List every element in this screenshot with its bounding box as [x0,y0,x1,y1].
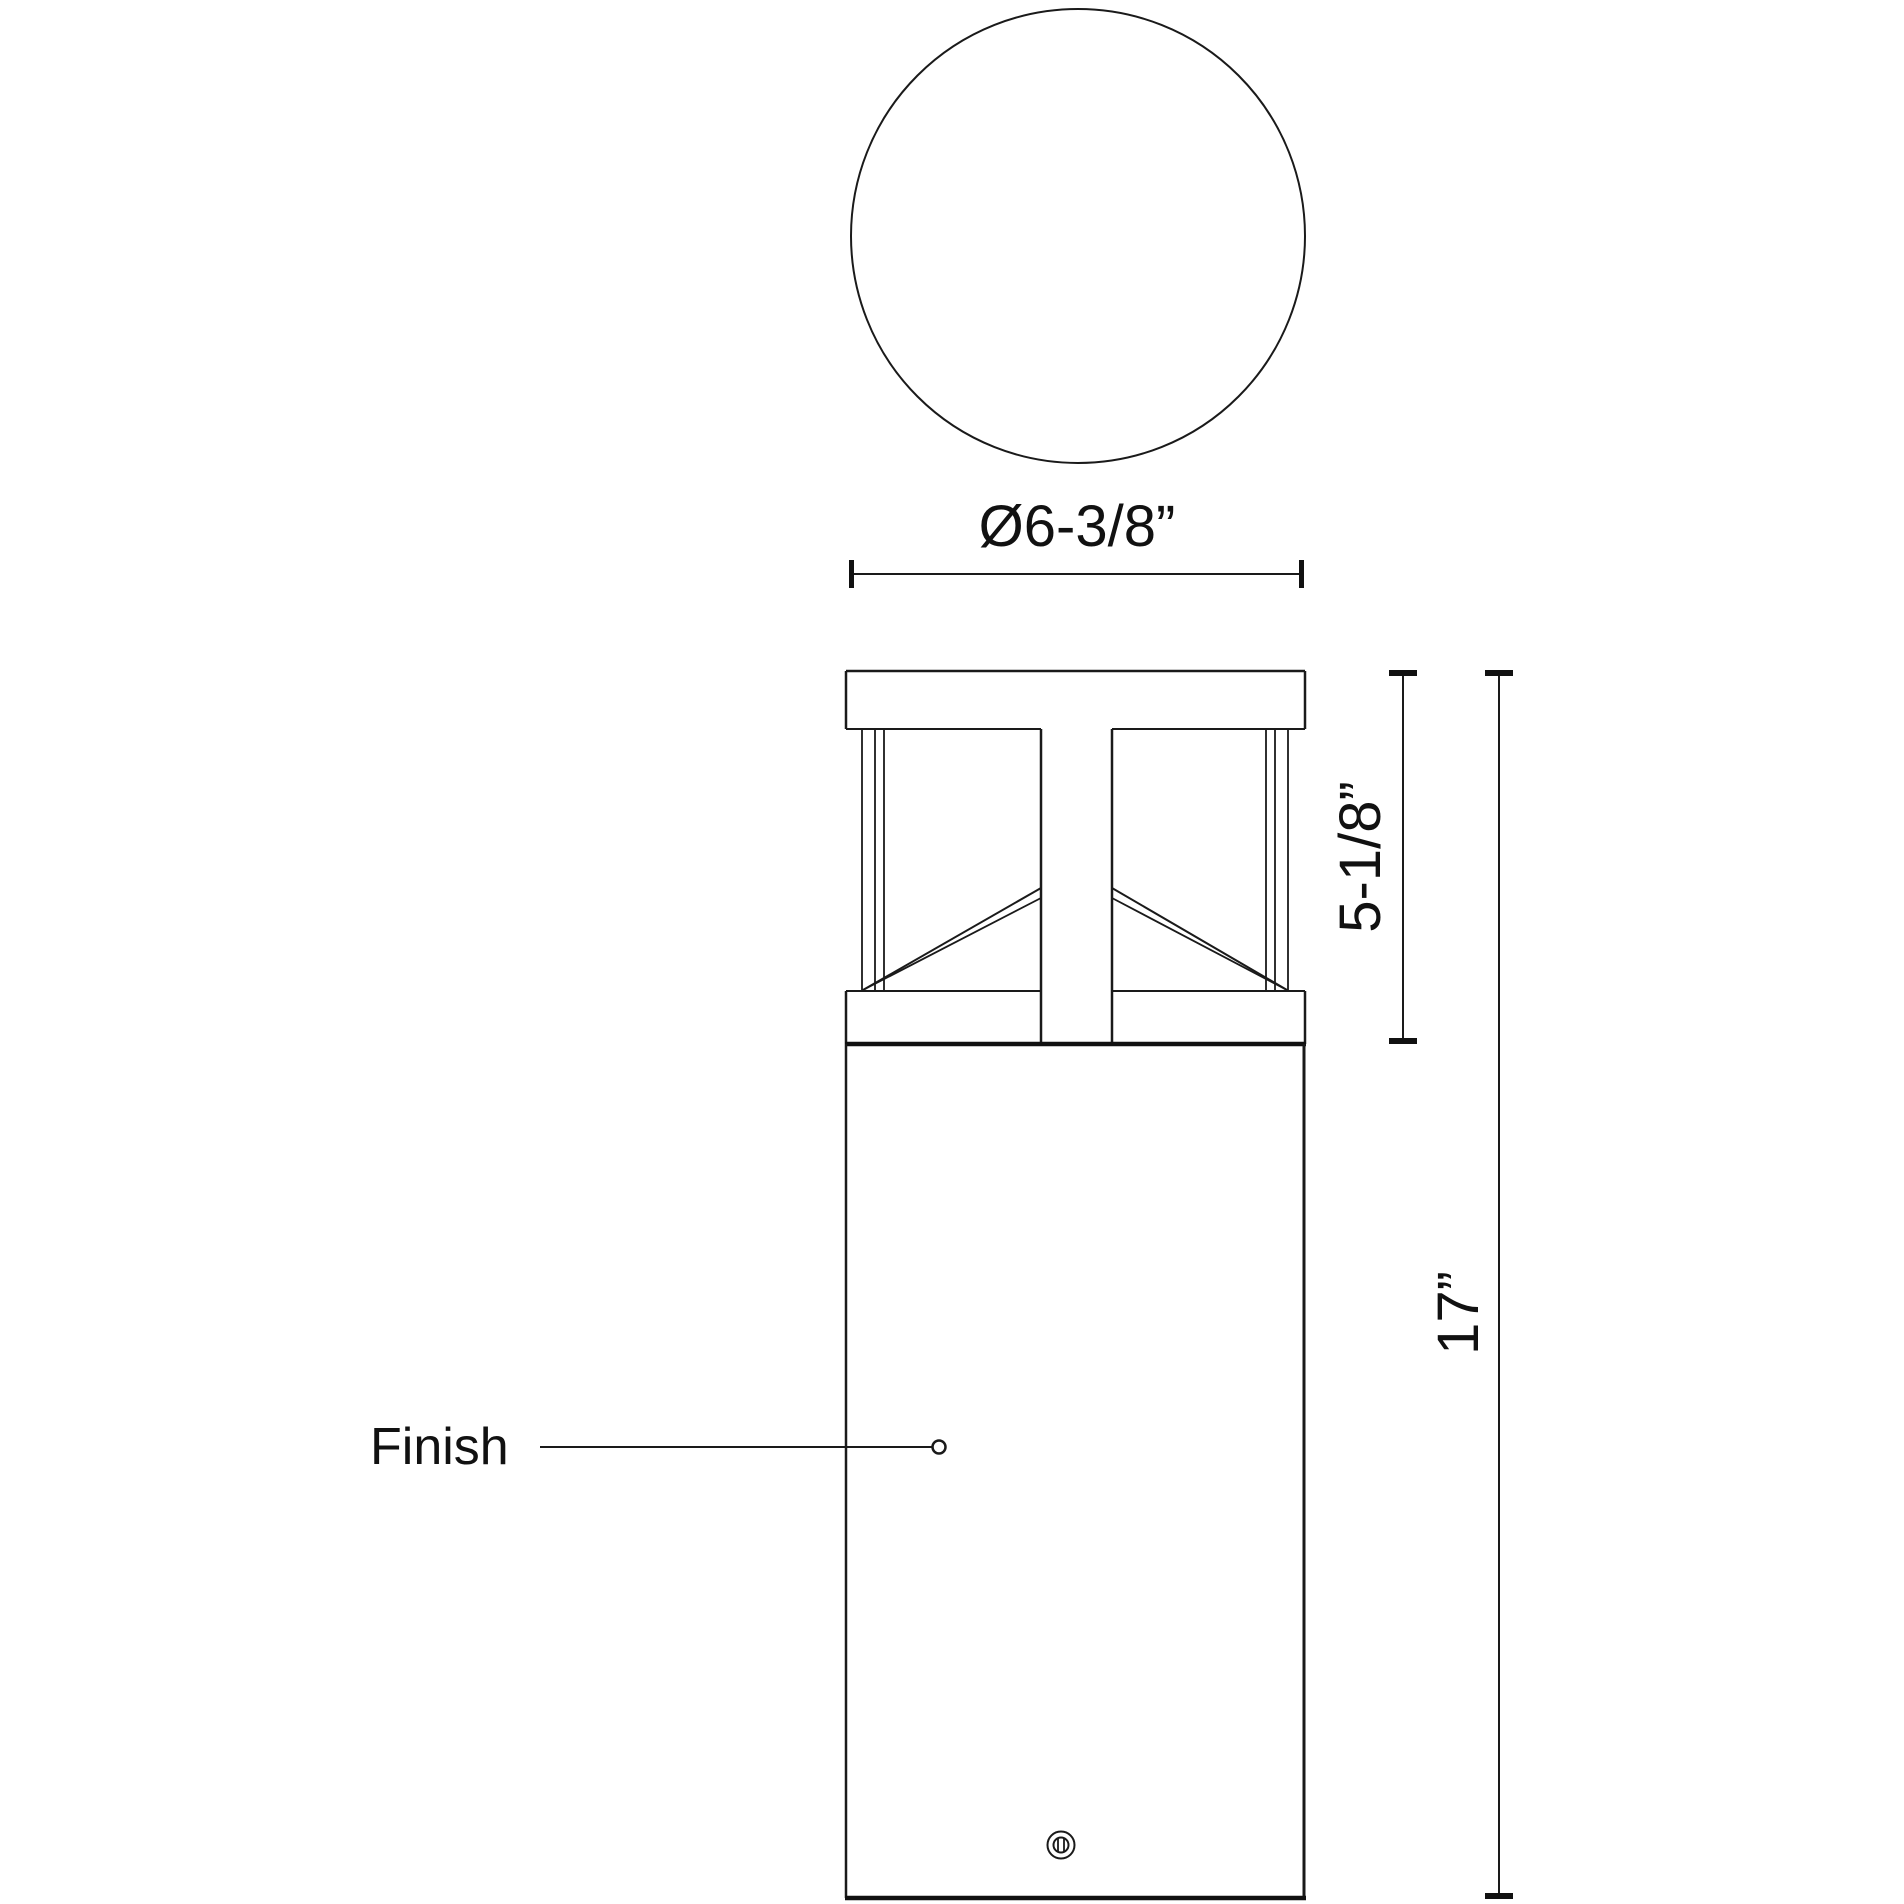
lantern-right-reflector-diagonal-1 [1112,888,1287,990]
finish-callout: Finish [370,1418,946,1476]
head-height-dimension-bottom-tick [1389,1038,1417,1044]
front-view-cap [846,671,1305,729]
top-view [851,9,1305,463]
diameter-dimension-right-tick [1299,560,1304,588]
finish-leader-dot [933,1441,946,1454]
finish-label: Finish [370,1418,509,1476]
lantern-left-reflector-diagonal-2 [863,898,1041,990]
set-screw-outer-circle [1048,1832,1075,1859]
diameter-dimension-left-tick [849,560,854,588]
front-view-body [845,1044,1306,1898]
set-screw-inner-circle [1054,1838,1069,1853]
drawing-svg: Ø6-3/8” [0,0,1904,1904]
front-view-head-base [845,991,1306,1044]
bollard-dimension-drawing: Ø6-3/8” [0,0,1904,1904]
overall-height-dimension-bottom-tick [1485,1893,1513,1899]
lantern-left-reflector-diagonal-1 [863,888,1041,990]
overall-height-dimension: 17” [1426,670,1513,1899]
front-view-center-post [1041,729,1112,1044]
diameter-dimension-label: Ø6-3/8” [979,494,1176,559]
head-height-dimension: 5-1/8” [1328,670,1417,1044]
overall-height-dimension-label: 17” [1426,1271,1491,1355]
top-view-circle [851,9,1305,463]
head-height-dimension-top-tick [1389,670,1417,676]
front-view-lantern [862,729,1288,991]
lantern-right-reflector-diagonal-2 [1112,898,1287,990]
diameter-dimension: Ø6-3/8” [849,494,1304,588]
overall-height-dimension-top-tick [1485,670,1513,676]
head-height-dimension-label: 5-1/8” [1328,781,1393,933]
